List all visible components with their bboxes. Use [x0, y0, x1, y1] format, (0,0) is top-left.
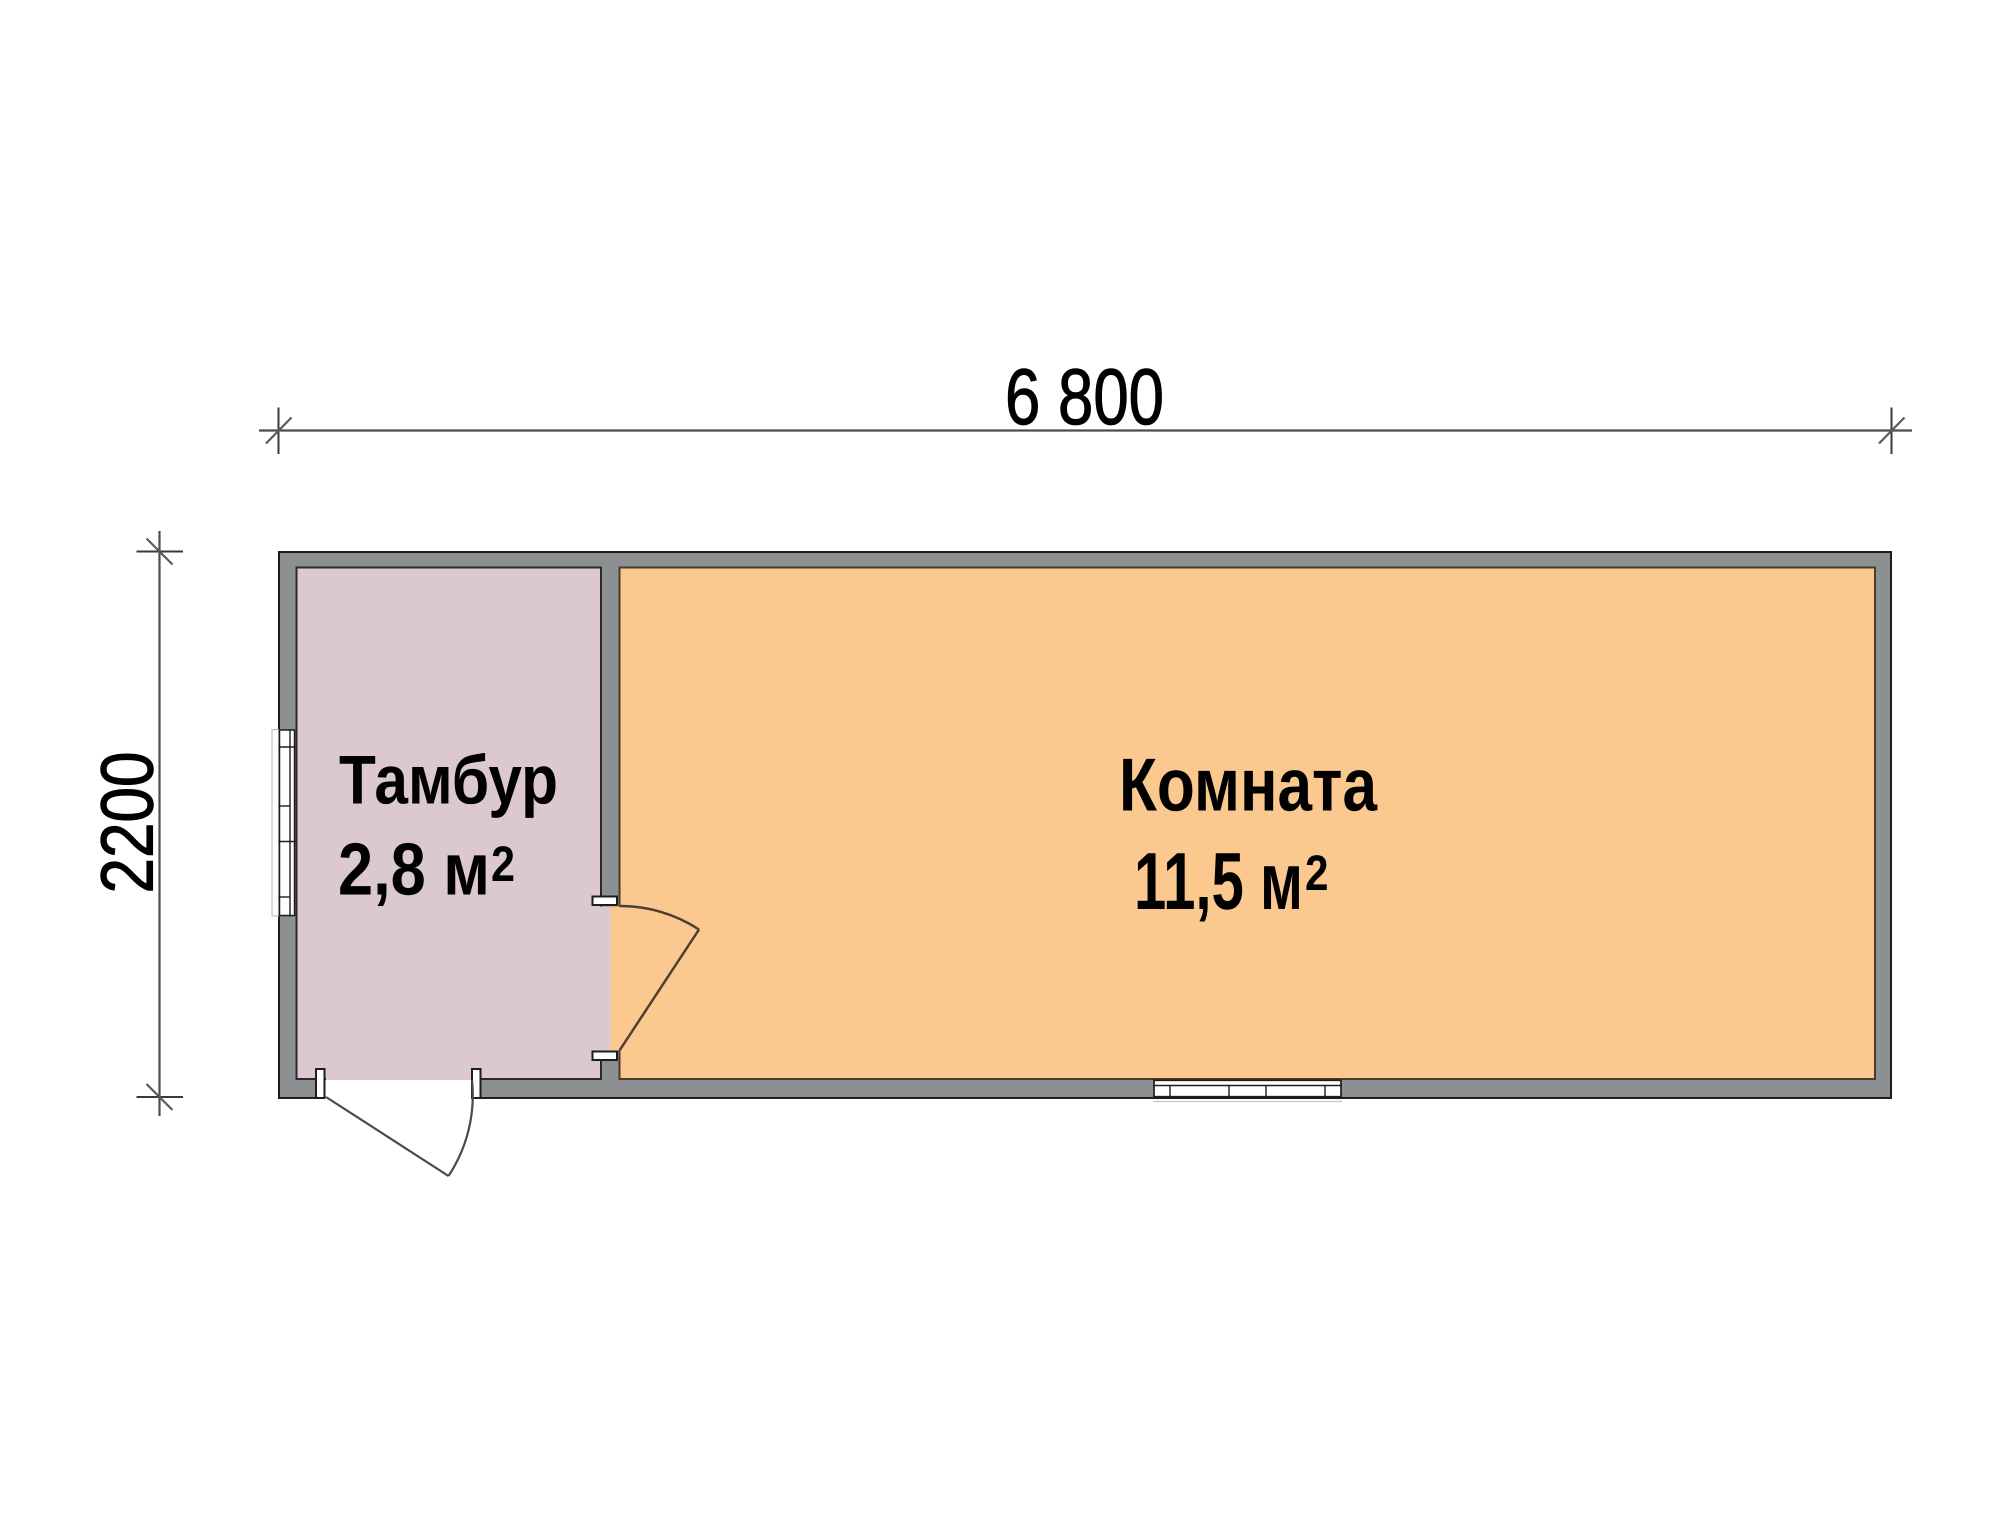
- svg-text:2200: 2200: [86, 752, 169, 894]
- svg-text:Тамбур: Тамбур: [339, 742, 558, 819]
- svg-text:11,5 м: 11,5 м: [1134, 837, 1303, 927]
- svg-text:2: 2: [1305, 845, 1329, 901]
- svg-text:Комната: Комната: [1119, 743, 1378, 827]
- svg-text:6 800: 6 800: [1005, 352, 1164, 441]
- svg-text:2: 2: [491, 836, 515, 892]
- svg-text:2,8 м: 2,8 м: [338, 828, 490, 911]
